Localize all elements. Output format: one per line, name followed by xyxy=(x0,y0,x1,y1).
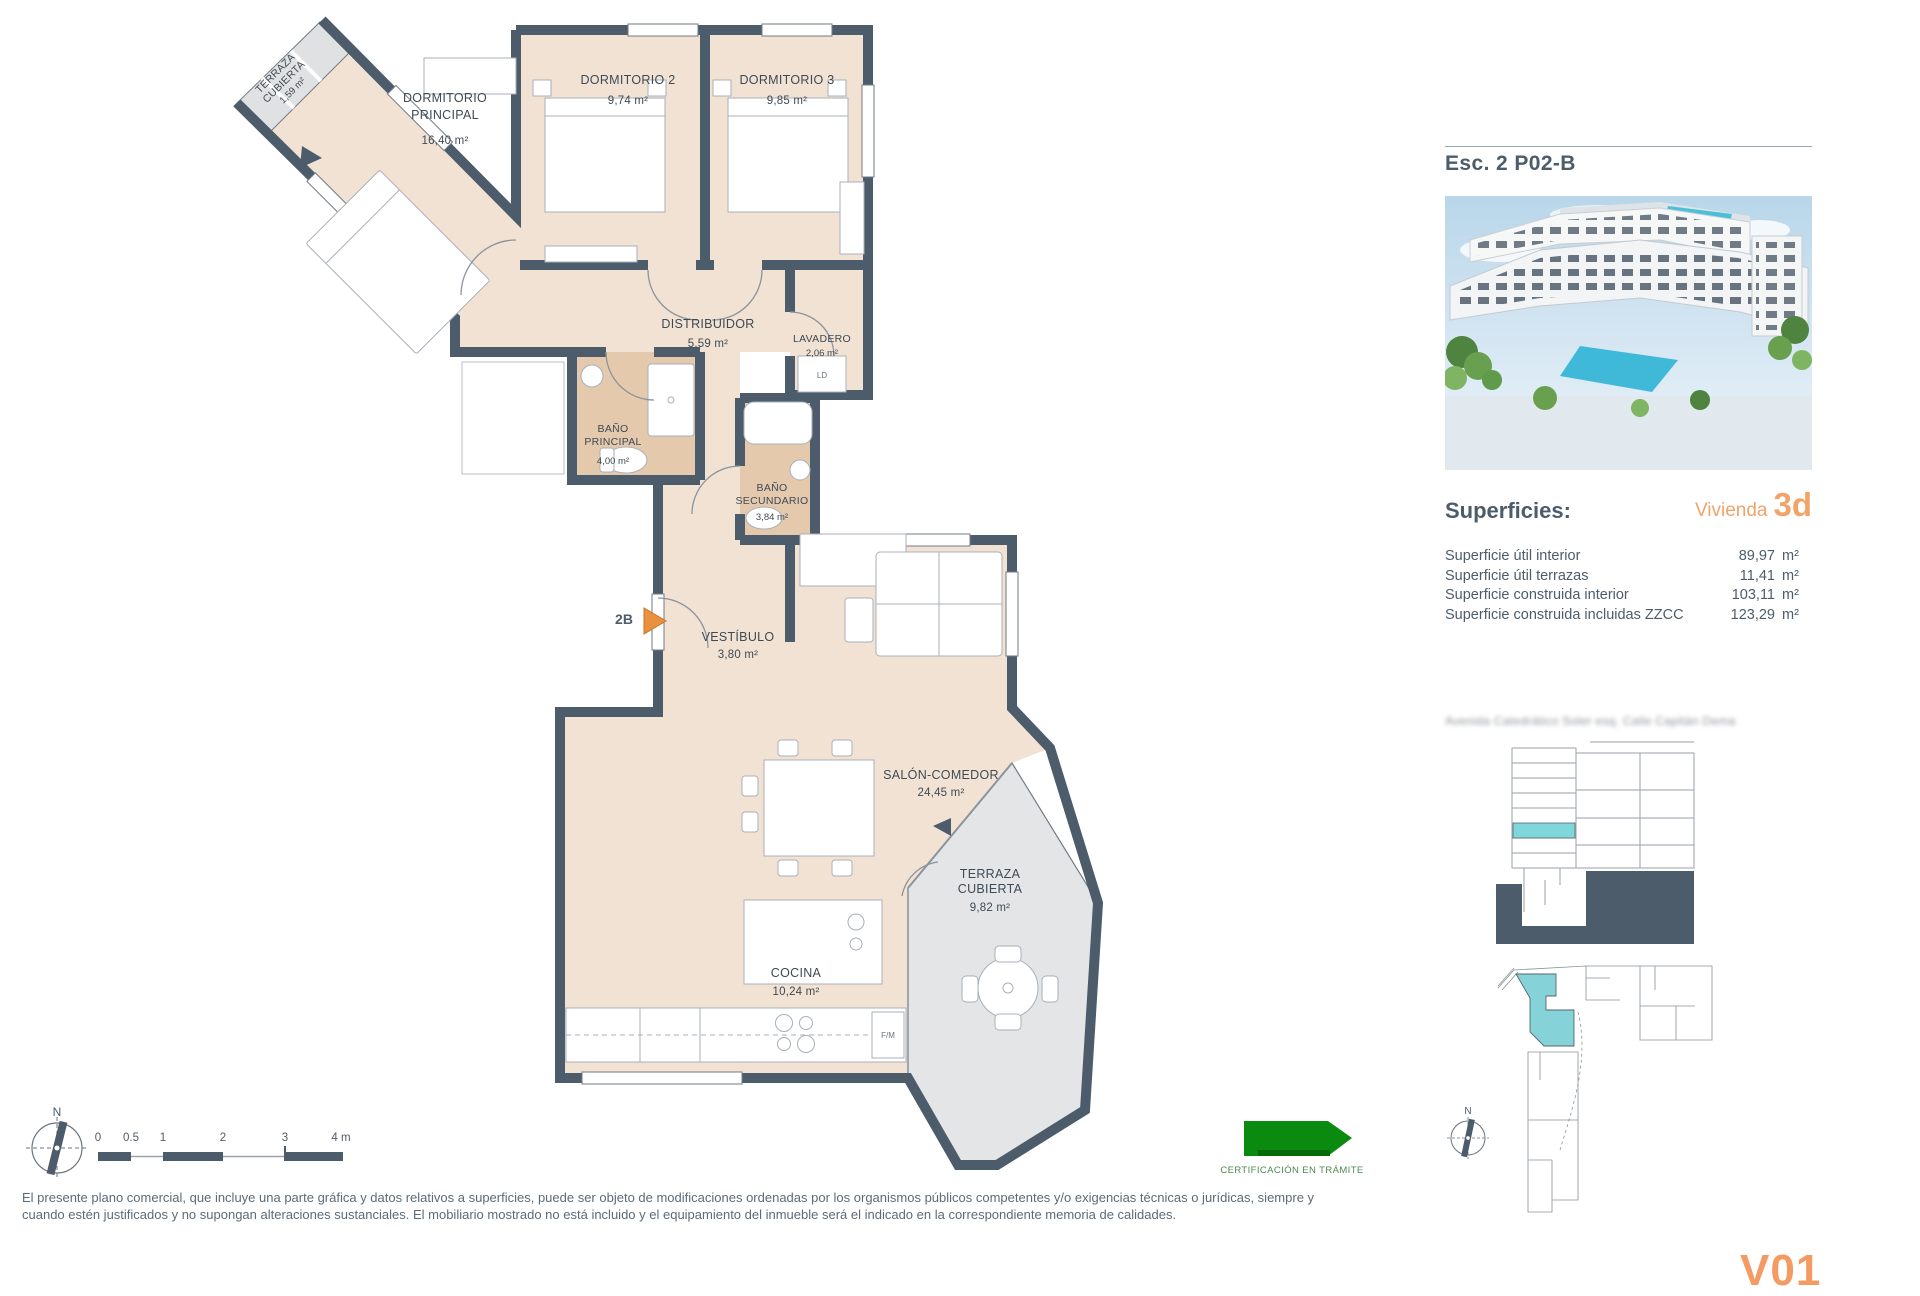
terrace-chair xyxy=(962,976,978,1002)
chair xyxy=(778,860,798,876)
svg-text:DORMITORIO 3: DORMITORIO 3 xyxy=(739,73,834,87)
patio-outline xyxy=(462,362,564,474)
disclaimer-line-1: El presente plano comercial, que incluye… xyxy=(22,1190,1314,1207)
ground-mass xyxy=(1496,871,1694,944)
vivienda-tag: Vivienda3d xyxy=(1695,486,1812,524)
svg-text:N: N xyxy=(53,1105,62,1119)
washer-label: LD xyxy=(817,371,827,380)
chair xyxy=(742,812,758,832)
svg-text:3,80 m²: 3,80 m² xyxy=(718,649,758,661)
table-row: Superficie útil terrazas 11,41 m² xyxy=(1445,567,1812,587)
fridge-label: F/M xyxy=(881,1031,895,1040)
svg-text:BAÑO: BAÑO xyxy=(757,481,788,494)
superficies-heading: Superficies: xyxy=(1445,498,1571,524)
table-row: Superficie útil interior 89,97 m² xyxy=(1445,547,1812,567)
svg-text:DORMITORIO: DORMITORIO xyxy=(403,91,487,105)
site-north-compass-icon: N xyxy=(1447,1106,1489,1159)
svg-text:1: 1 xyxy=(160,1132,166,1144)
terrace-chair xyxy=(1042,976,1058,1002)
disclaimer-line-2: cuando estén justificados y no supongan … xyxy=(22,1207,1314,1224)
table-row: Superficie construida incluidas ZZCC 123… xyxy=(1445,606,1812,626)
svg-text:VESTÍBULO: VESTÍBULO xyxy=(702,629,775,644)
version-label: V01 xyxy=(1740,1246,1821,1296)
floor-plan: TERRAZA CUBIERTA 1,59 m² DORMITORIO PRIN… xyxy=(0,0,1390,1280)
vivienda-label: Vivienda xyxy=(1695,500,1768,521)
bed-dorm2 xyxy=(545,98,665,212)
svg-text:2,06 m²: 2,06 m² xyxy=(806,348,838,359)
certification: CERTIFICACIÓN EN TRÁMITE xyxy=(1220,1121,1363,1176)
nightstand xyxy=(533,80,551,96)
unit-2b-label: 2B xyxy=(615,611,633,627)
svg-text:PRINCIPAL: PRINCIPAL xyxy=(411,108,479,122)
svg-text:DORMITORIO 2: DORMITORIO 2 xyxy=(580,73,675,87)
svg-text:24,45 m²: 24,45 m² xyxy=(918,787,965,799)
chair xyxy=(778,740,798,756)
svg-text:LAVADERO: LAVADERO xyxy=(793,333,851,345)
svg-text:9,74 m²: 9,74 m² xyxy=(608,95,648,107)
highlighted-floor xyxy=(1513,823,1575,838)
svg-text:10,24 m²: 10,24 m² xyxy=(773,986,820,998)
svg-text:5,59 m²: 5,59 m² xyxy=(688,338,728,350)
page-title: Esc. 2 P02-B xyxy=(1445,152,1576,176)
svg-text:BAÑO: BAÑO xyxy=(598,422,629,435)
svg-text:3,84 m²: 3,84 m² xyxy=(756,512,788,523)
building-section-diagram xyxy=(1445,735,1755,960)
nightstand xyxy=(713,80,731,96)
bed-dorm3 xyxy=(728,98,848,212)
wardrobe-principal xyxy=(424,58,516,94)
svg-text:DISTRIBUIDOR: DISTRIBUIDOR xyxy=(661,317,754,331)
svg-text:COCINA: COCINA xyxy=(771,966,822,980)
scale-bar: 0 0.5 1 2 3 4 m xyxy=(95,1132,351,1161)
terrace-chair xyxy=(995,946,1021,962)
building-render-image xyxy=(1445,196,1812,470)
armchair xyxy=(845,598,873,642)
north-compass-icon: N xyxy=(26,1105,88,1179)
svg-text:0.5: 0.5 xyxy=(123,1132,139,1144)
closet-dorm3 xyxy=(840,182,864,254)
chair xyxy=(742,776,758,796)
svg-text:3: 3 xyxy=(282,1132,288,1144)
svg-text:4 m: 4 m xyxy=(331,1132,350,1144)
svg-text:2: 2 xyxy=(220,1132,226,1144)
svg-text:16,40 m²: 16,40 m² xyxy=(422,135,469,147)
chair xyxy=(832,860,852,876)
certification-label: CERTIFICACIÓN EN TRÁMITE xyxy=(1220,1165,1363,1176)
superficies-header: Superficies: Vivienda3d xyxy=(1445,486,1812,524)
svg-text:4,00 m²: 4,00 m² xyxy=(597,456,629,467)
site-key-plan: N xyxy=(1440,960,1760,1260)
svg-text:PRINCIPAL: PRINCIPAL xyxy=(584,436,641,448)
superficies-table: Superficie útil interior 89,97 m² Superf… xyxy=(1445,547,1812,625)
svg-text:CUBIERTA: CUBIERTA xyxy=(958,882,1023,896)
table-row: Superficie construida interior 103,11 m² xyxy=(1445,586,1812,606)
highlighted-unit xyxy=(1516,974,1574,1046)
terrace-chair xyxy=(995,1014,1021,1030)
sink xyxy=(790,460,810,480)
chair xyxy=(832,740,852,756)
sink xyxy=(581,365,603,387)
bathtub xyxy=(744,402,812,444)
svg-text:0: 0 xyxy=(95,1132,101,1144)
vivienda-value: 3d xyxy=(1773,486,1812,523)
legal-disclaimer: El presente plano comercial, que incluye… xyxy=(22,1190,1314,1223)
closet-dorm2 xyxy=(545,246,637,262)
panel-divider xyxy=(1445,146,1812,147)
svg-text:N: N xyxy=(1464,1106,1471,1117)
svg-text:9,85 m²: 9,85 m² xyxy=(767,95,807,107)
svg-text:TERRAZA: TERRAZA xyxy=(960,867,1021,881)
svg-text:SECUNDARIO: SECUNDARIO xyxy=(735,495,808,507)
dining-table xyxy=(764,760,874,856)
project-address: Avenida Catedrático Soler esq. Calle Cap… xyxy=(1445,714,1812,728)
svg-text:9,82 m²: 9,82 m² xyxy=(970,902,1010,914)
svg-text:SALÓN-COMEDOR: SALÓN-COMEDOR xyxy=(883,767,999,782)
